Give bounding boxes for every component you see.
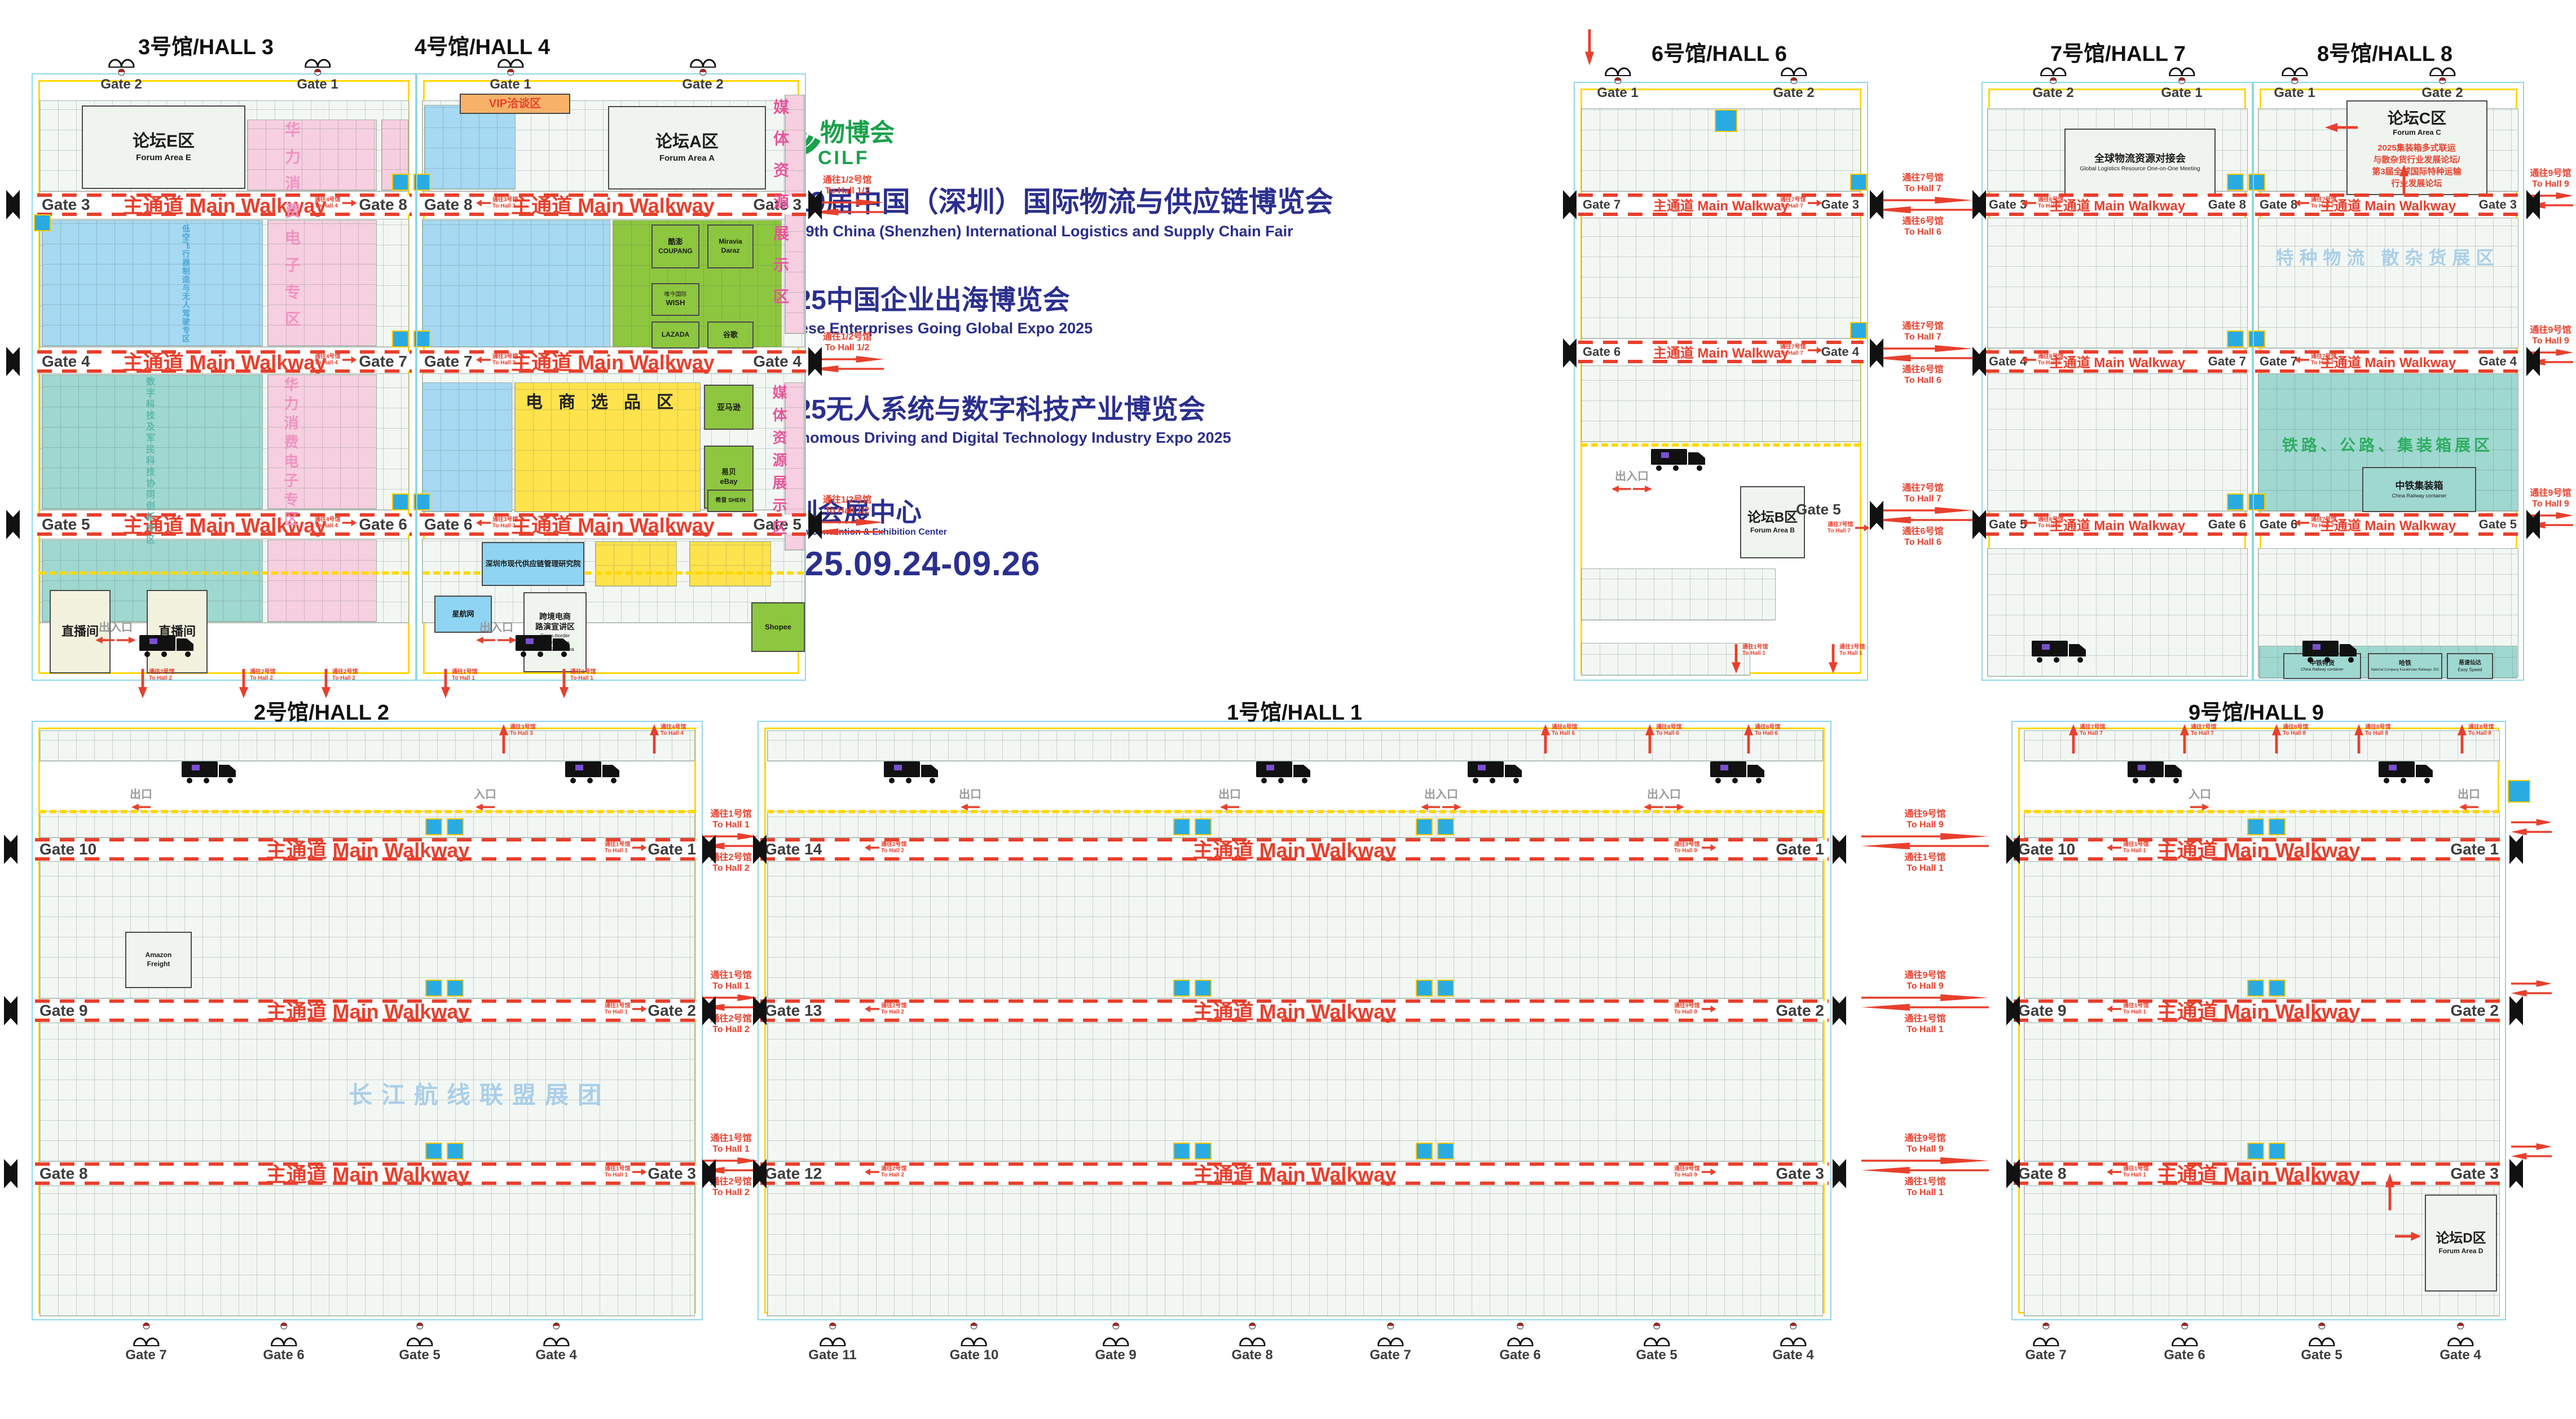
- side-gate-icon: [2526, 509, 2540, 540]
- walkway-destination-note: 通往7号馆To Hall 7: [2295, 354, 2337, 366]
- marker-dot-icon: [2291, 77, 2298, 84]
- feature-booth: 谷歌: [707, 321, 754, 349]
- marker-dot-icon: [2318, 1323, 2325, 1329]
- service-box-icon: [2227, 493, 2244, 510]
- booth-label: VIP洽谈区: [489, 98, 541, 111]
- gate-top: Gate 1: [490, 52, 531, 92]
- annotation-text: 通往6号馆To Hall 6: [1903, 216, 1944, 237]
- main-walkway-label: 主通道 Main Walkway: [511, 346, 715, 376]
- hall-9-title: 9号馆/HALL 9: [2189, 695, 2324, 726]
- zone-label-vertical: 媒体资源展示区: [769, 385, 790, 545]
- door-arc-icon: [497, 52, 523, 68]
- arrow-left-icon: [476, 637, 495, 644]
- entrance-exit-label: 入口: [474, 785, 496, 810]
- marker-dot-icon: [1790, 77, 1797, 84]
- to-hall-up-arrow: 通往6号馆To Hall 6: [1541, 724, 1578, 753]
- gate-top: Gate 2: [1773, 60, 1814, 101]
- arrow-icon: [632, 1006, 647, 1012]
- main-walkway-label: 主通道 Main Walkway: [1193, 995, 1397, 1025]
- booth-label: 直播间: [61, 624, 99, 638]
- arrow-icon: [2107, 1006, 2121, 1012]
- main-walkway-label: 主通道 Main Walkway: [266, 995, 470, 1025]
- feature-booth: MiraviaDaraz: [707, 224, 754, 268]
- gate-label: Gate 2: [2032, 85, 2073, 101]
- booth-label: Forum Area C: [2393, 129, 2441, 137]
- annotation-text: 通往4号馆To Hall 4: [660, 724, 686, 737]
- arrow-down-icon: [1829, 644, 1838, 673]
- marker-dot-icon: [699, 69, 706, 76]
- feature-booth: 论坛E区Forum Area E: [82, 105, 245, 189]
- booth-label: 易速仙达: [2459, 660, 2481, 667]
- main-walkway: Gate 6Gate 4主通道 Main Walkway通往7号馆To Hall…: [1578, 342, 1864, 362]
- arrow-right-icon: [1442, 804, 1461, 810]
- side-gate-icon: [1832, 995, 1847, 1026]
- side-gate-icon: [702, 995, 716, 1026]
- arrow-left-icon: [1421, 804, 1440, 810]
- arrow-icon: [1855, 525, 1870, 531]
- marker-dot-icon: [2178, 77, 2185, 84]
- gate-top: Gate 1: [2161, 60, 2202, 101]
- main-walkway: Gate 8Gate 3主通道 Main Walkway通往1号馆To Hall…: [2014, 1164, 2503, 1183]
- entrance-exit-label: 出口: [1218, 785, 1241, 810]
- booth-label: Shopee: [765, 623, 791, 632]
- annotation-text: 通往6号馆To Hall 6: [1552, 724, 1578, 737]
- gate-label: Gate 5: [2301, 1347, 2342, 1363]
- annotation-text: 通往7号馆To Hall 7: [2191, 724, 2217, 737]
- arrow-up-icon: [2272, 724, 2281, 753]
- feature-booth: 哈铁National Company Kazakhstan Railways J…: [2368, 653, 2442, 679]
- gate-label: Gate 11: [808, 1347, 856, 1363]
- service-box-icon: [1173, 980, 1190, 997]
- gate-top: Gate 1: [297, 52, 338, 92]
- booth-label: 论坛C区: [2388, 109, 2446, 127]
- to-hall-annotation: [2511, 980, 2552, 997]
- booth-label: China Railway container: [2392, 493, 2446, 499]
- main-walkway: Gate 5Gate 6主通道 Main Walkway通往6号馆To Hall…: [1984, 515, 2251, 534]
- to-hall-annotation: 通往9号馆To Hall 9通往1号馆To Hall 1: [1861, 809, 1989, 874]
- side-gate-icon: [808, 509, 822, 540]
- side-gate-icon: [2006, 834, 2020, 865]
- gate-label: Gate 2: [682, 77, 723, 92]
- main-walkway: Gate 3Gate 8主通道 Main Walkway通往6号馆To Hall…: [1984, 195, 2251, 214]
- gate-label: Gate 7: [1583, 197, 1621, 212]
- gate-label: Gate 4: [1772, 1347, 1813, 1363]
- main-walkway: Gate 8Gate 3主通道 Main Walkway通往3号馆To Hall…: [420, 195, 806, 214]
- annotation-text: 通往1/2号馆To Hall 1/2: [823, 495, 871, 516]
- main-walkway-label: 主通道 Main Walkway: [2050, 514, 2186, 534]
- gate-label: Gate 8: [2208, 197, 2246, 212]
- walkway-destination-note: 通往3号馆To Hall 3: [476, 197, 518, 209]
- service-box-icon: [1173, 1143, 1190, 1160]
- annotation-text: 通往2号馆To Hall 2: [711, 852, 752, 874]
- booth-zone-light_blue: [42, 220, 263, 346]
- side-gate-icon: [2509, 834, 2524, 865]
- door-arc-icon: [690, 52, 716, 68]
- gate-label: Gate 6: [2260, 517, 2297, 532]
- annotation-text: 通往9号馆To Hall 9: [2530, 168, 2571, 190]
- walkway-destination-note: 通往3号馆To Hall 3: [476, 517, 518, 529]
- main-walkway-label: 主通道 Main Walkway: [511, 509, 715, 539]
- annotation-text: 通往7号馆To Hall 7: [1903, 483, 1944, 504]
- annotation-text: 通往7号馆To Hall 7: [1903, 173, 1944, 194]
- annotation-text: 通往1号馆To Hall 1: [711, 809, 752, 830]
- annotation-text: 通往9号馆To Hall 9: [1905, 970, 1946, 991]
- service-box-icon: [1173, 818, 1190, 835]
- annotation-text: 通往1号馆To Hall 1: [570, 669, 596, 681]
- walkway-destination-note: 通往9号馆To Hall 9: [1674, 1166, 1716, 1178]
- hall-divider: [2253, 82, 2254, 681]
- side-gate-icon: [2006, 1158, 2020, 1189]
- feature-booth: Shopee: [751, 602, 805, 652]
- gate-label: Gate 6: [424, 515, 473, 534]
- arrow-icon: [2295, 519, 2309, 526]
- gate-bottom: Gate 6: [263, 1323, 304, 1363]
- main-walkway-label: 主通道 Main Walkway: [2050, 195, 2186, 214]
- gate-bottom: Gate 7: [2025, 1323, 2066, 1363]
- marker-dot-icon: [2439, 77, 2446, 84]
- booth-zone-light_blue: [424, 105, 516, 190]
- gate-label: Gate 6: [359, 515, 407, 534]
- arrow-icon: [632, 844, 647, 851]
- main-walkway: Gate 12Gate 3主通道 Main Walkway通往2号馆To Hal…: [760, 1164, 1829, 1183]
- annotation-text: 通往1号馆To Hall 1: [711, 1133, 752, 1154]
- booth-label: 哈铁: [2399, 660, 2411, 667]
- to-hall-up-arrow: 通往8号馆To Hall 8: [2354, 724, 2391, 753]
- booth-grid: [767, 861, 1823, 999]
- gate-label: Gate 4: [2440, 1347, 2481, 1363]
- arrow-left-icon: [1611, 486, 1631, 492]
- service-box-icon: [2247, 818, 2264, 835]
- service-box-icon: [2227, 330, 2244, 347]
- gate-label: Gate 8: [1231, 1347, 1272, 1363]
- side-gate-icon: [702, 834, 716, 865]
- logo-text-cn: 物博会: [820, 112, 895, 148]
- walkway-destination-note: 通往1号馆To Hall 1: [605, 841, 647, 854]
- arrow-left-icon: [1873, 355, 1973, 362]
- door-arc-icon: [2282, 60, 2308, 76]
- gate-label: Gate 9: [1095, 1347, 1136, 1363]
- door-arc-icon: [2447, 1330, 2473, 1346]
- walkway-destination-note: 通往6号馆To Hall 6: [2022, 517, 2064, 529]
- main-walkway-label: 主通道 Main Walkway: [2157, 995, 2361, 1025]
- arrow-down-icon: [560, 669, 569, 698]
- entrance-exit-label: 出口: [2458, 785, 2480, 810]
- truck-icon: [1255, 757, 1317, 784]
- to-hall-annotation: 通往7号馆To Hall 7通往6号馆To Hall 6: [1873, 173, 1973, 237]
- zone-label-vertical: 华力消费电子专区: [280, 377, 301, 535]
- gate-label: Gate 13: [765, 1002, 822, 1020]
- feature-booth: 全球物流资源对接会Global Logistics Resource One-o…: [2064, 129, 2216, 196]
- arrow-right-icon: [1861, 1157, 1989, 1164]
- gate-bottom: Gate 5: [2301, 1323, 2342, 1363]
- main-walkway: Gate 8Gate 3主通道 Main Walkway通往1号馆To Hall…: [35, 1164, 701, 1183]
- service-box-icon: [425, 818, 442, 835]
- booth-label: Forum Area E: [136, 153, 191, 162]
- booth-grid: [39, 1186, 695, 1316]
- arrow-icon: [1808, 347, 1822, 354]
- gate-label: Gate 2: [1776, 1002, 1824, 1020]
- arrow-icon: [1702, 844, 1716, 851]
- zone-label: 电商选品区: [526, 388, 689, 413]
- main-walkway-label: 主通道 Main Walkway: [266, 1158, 470, 1188]
- to-hall-up-arrow: 通往7号馆To Hall 7: [2069, 724, 2106, 753]
- booth-label: 星航网: [452, 610, 474, 619]
- truck-icon: [1650, 444, 1712, 471]
- booth-label: 论坛A区: [655, 133, 719, 152]
- gate-label: Gate 5: [399, 1347, 440, 1363]
- gate-label: Gate 6: [1583, 345, 1621, 359]
- gate-label: Gate 7: [2025, 1347, 2066, 1363]
- marker-dot-icon: [118, 69, 125, 76]
- side-gate-icon: [752, 834, 767, 865]
- walkway-destination-note: 通往4号馆To Hall 4: [315, 354, 357, 366]
- main-walkway-label: 主通道 Main Walkway: [1193, 834, 1397, 863]
- service-box-icon: [2248, 330, 2265, 347]
- gate-bottom: Gate 4: [1772, 1323, 1813, 1363]
- annotation-text: 通往9号馆To Hall 9: [1905, 809, 1946, 830]
- annotation-text: 通往2号馆To Hall 2: [711, 1176, 752, 1198]
- to-hall-annotation: 通往9号馆To Hall 9通往1号馆To Hall 1: [1861, 1133, 1989, 1198]
- walkway-destination-note: 通往6号馆To Hall 6: [2022, 354, 2064, 366]
- gate-label: Gate 2: [2450, 1002, 2499, 1020]
- booth-label: 酷澎: [668, 238, 682, 246]
- main-walkway: Gate 7Gate 4主通道 Main Walkway通往3号馆To Hall…: [420, 352, 806, 371]
- arrow-icon: [2107, 1169, 2121, 1175]
- zone-label: 长江航线联盟展团: [349, 1076, 610, 1110]
- marker-dot-icon: [143, 1323, 149, 1329]
- walkway-destination-note: 通往6号馆To Hall 6: [2022, 197, 2064, 209]
- marker-dot-icon: [314, 69, 321, 76]
- booth-label: Easy Speed: [2458, 667, 2482, 672]
- main-walkway-label: 主通道 Main Walkway: [266, 834, 470, 863]
- service-box-icon: [2227, 174, 2244, 191]
- gate-label: Gate 1: [1597, 85, 1638, 101]
- marker-dot-icon: [507, 69, 514, 76]
- arrow-left-icon: [1644, 804, 1663, 810]
- booth-zone-yellow_booth: [595, 541, 677, 587]
- gate-label: Gate 8: [424, 196, 473, 214]
- service-box-icon: [34, 214, 51, 231]
- gate-label: Gate 14: [765, 840, 822, 858]
- walkway-destination-note: 通往1号馆To Hall 1: [605, 1003, 647, 1015]
- walkway-destination-note: 通往7号馆To Hall 7: [1828, 522, 1870, 534]
- gate-top: Gate 1: [1597, 60, 1638, 101]
- gate-bottom: Gate 6: [1499, 1323, 1540, 1363]
- gate-bottom: Gate 7: [125, 1323, 166, 1363]
- annotation-text: 通往1号馆To Hall 1: [711, 970, 752, 991]
- expo3-title-cn: 2025无人系统与数字科技产业博览会: [766, 387, 1205, 426]
- gate-label: Gate 2: [1773, 85, 1814, 101]
- expo2-title-cn: 2025中国企业出海博览会: [766, 277, 1070, 317]
- arrow-left-icon: [2459, 804, 2478, 810]
- main-walkway-label: 主通道 Main Walkway: [2157, 834, 2361, 863]
- service-box-icon: [392, 174, 409, 191]
- expo3-title-en: Autonomous Driving and Digital Technolog…: [766, 429, 1231, 447]
- booth-grid: [1987, 373, 2248, 512]
- to-hall-up-arrow: 通往3号馆To Hall 3: [499, 724, 536, 753]
- yellow-dashed-boundary: [39, 571, 409, 575]
- service-box-icon: [2508, 780, 2530, 803]
- walkway-destination-note: 通往4号馆To Hall 4: [315, 197, 357, 209]
- service-box-icon: [1437, 818, 1454, 835]
- booth-label: Daraz: [721, 247, 740, 255]
- door-arc-icon: [1507, 1330, 1533, 1346]
- arrow-up-icon: [2069, 724, 2078, 753]
- door-arc-icon: [1644, 1330, 1670, 1346]
- arrow-up-icon: [2354, 724, 2363, 753]
- gate-label: Gate 1: [2161, 85, 2202, 101]
- to-hall-down-arrow: 通往1号馆To Hall 1: [441, 669, 478, 698]
- gate-label: Gate 5: [2479, 517, 2517, 532]
- arrow-right-icon: [1873, 345, 1973, 352]
- gate-label: Gate 6: [2208, 517, 2246, 532]
- gate-bottom: Gate 11: [808, 1323, 856, 1363]
- walkway-destination-note: 通往3号馆To Hall 3: [476, 354, 518, 366]
- gate-label: Gate 5: [1796, 501, 1841, 518]
- marker-dot-icon: [2181, 1323, 2188, 1329]
- main-walkway: Gate 3Gate 8主通道 Main Walkway通往4号馆To Hall…: [37, 195, 412, 214]
- feature-booth: AmazonFreight: [125, 932, 192, 988]
- main-walkway: Gate 6Gate 5主通道 Main Walkway通往3号馆To Hall…: [420, 515, 806, 534]
- walkway-destination-note: 通往7号馆To Hall 7: [2295, 517, 2337, 529]
- to-hall-up-arrow: 通往8号馆To Hall 8: [2458, 724, 2494, 753]
- service-box-icon: [2248, 174, 2265, 191]
- gate-label: Gate 3: [2450, 1165, 2499, 1183]
- gate-label: Gate 3: [2479, 197, 2517, 212]
- booth-label: 论坛E区: [133, 132, 195, 152]
- arrow-right-icon: [1861, 833, 1989, 840]
- feature-booth: 中铁集装箱China Railway container: [2362, 467, 2476, 512]
- main-walkway-label: 主通道 Main Walkway: [1653, 342, 1789, 362]
- annotation-text: 通往8号馆To Hall 8: [2365, 724, 2391, 737]
- service-box-icon: [425, 1143, 442, 1160]
- marker-dot-icon: [1614, 77, 1621, 84]
- to-hall-annotation: 通往7号馆To Hall 7通往6号馆To Hall 6: [1873, 483, 1973, 548]
- service-box-icon: [1416, 818, 1433, 835]
- service-box-icon: [1715, 109, 1737, 132]
- arrow-icon: [2022, 200, 2036, 206]
- arrow-left-icon: [95, 637, 115, 644]
- marker-dot-icon: [1112, 1323, 1119, 1329]
- side-gate-icon: [808, 346, 822, 377]
- gate-top: Gate 2: [2032, 60, 2073, 101]
- arrow-up-icon: [2458, 724, 2467, 753]
- zone-label: 特种物流 散杂货展区: [2276, 244, 2500, 270]
- door-arc-icon: [543, 1330, 569, 1346]
- gate-label: Gate 1: [490, 77, 531, 92]
- marker-dot-icon: [1517, 1323, 1523, 1329]
- arrow-icon: [342, 519, 357, 526]
- main-walkway: Gate 4Gate 7主通道 Main Walkway通往4号馆To Hall…: [37, 352, 412, 371]
- side-gate-icon: [1832, 1158, 1847, 1189]
- to-hall-down-arrow: 通往1号馆To Hall 1: [560, 669, 596, 698]
- gate-label: Gate 7: [2208, 354, 2246, 369]
- main-walkway: Gate 6Gate 5主通道 Main Walkway通往7号馆To Hall…: [2255, 515, 2521, 534]
- walkway-destination-note: 通往7号馆To Hall 7: [2295, 197, 2337, 209]
- expo1-title-en: The 19th China (Shenzhen) International …: [766, 223, 1293, 240]
- booth-zone-light_blue: [422, 382, 512, 512]
- gate-label: Gate 2: [2421, 85, 2463, 101]
- service-box-icon: [1416, 980, 1433, 997]
- gate-bottom: Gate 7: [1370, 1323, 1411, 1363]
- door-arc-icon: [2033, 1330, 2059, 1346]
- yellow-dashed-boundary: [423, 571, 804, 575]
- arrow-left-icon: [1873, 517, 1973, 523]
- to-hall-down-arrow: 通往2号馆To Hall 2: [239, 669, 276, 698]
- gate-label: Gate 10: [950, 1347, 999, 1363]
- booth-grid: [767, 1023, 1823, 1162]
- main-walkway: Gate 9Gate 2主通道 Main Walkway通往1号馆To Hall…: [35, 1001, 701, 1020]
- marker-dot-icon: [1653, 1323, 1660, 1329]
- door-arc-icon: [407, 1330, 433, 1346]
- annotation-text: 通往7号馆To Hall 7: [1903, 321, 1944, 342]
- feature-booth: VIP洽谈区: [460, 94, 570, 114]
- gate-bottom: Gate 4: [535, 1323, 576, 1363]
- walkway-destination-note: 通往7号馆To Hall 7: [1780, 197, 1822, 209]
- main-walkway: Gate 4Gate 7主通道 Main Walkway通往6号馆To Hall…: [1984, 352, 2251, 371]
- booth-grid: [2024, 861, 2500, 999]
- side-gate-icon: [2006, 995, 2020, 1026]
- floorplan-canvas: 物博会 CILF 第19届中国（深圳）国际物流与供应链博览会 The 19th …: [0, 0, 2576, 1419]
- gate-label: Gate 1: [2274, 85, 2315, 101]
- entrance-exit-label: 出口: [959, 785, 981, 810]
- booth-grid: [1581, 365, 1861, 442]
- hall-2-title: 2号馆/HALL 2: [254, 695, 389, 726]
- arrow-icon: [865, 844, 879, 851]
- arrow-icon: [476, 356, 491, 363]
- arrow-down-icon: [239, 669, 248, 698]
- gate-label: Gate 8: [2018, 1165, 2067, 1183]
- main-walkway-label: 主通道 Main Walkway: [2320, 195, 2456, 214]
- service-box-icon: [447, 818, 464, 835]
- zone-label-vertical: 媒体资源展示区: [769, 99, 791, 330]
- marker-dot-icon: [553, 1323, 560, 1329]
- arrow-icon: [2022, 519, 2036, 526]
- booth-label: National Company Kazakhstan Railways JSC: [2371, 668, 2439, 672]
- side-gate-icon: [1972, 509, 1987, 540]
- booth-grid: [1987, 218, 2248, 349]
- to-hall-down-arrow: 通往1号馆To Hall 1: [1732, 644, 1768, 673]
- truck-icon: [1709, 757, 1771, 784]
- annotation-text: 通往3号馆To Hall 3: [510, 724, 536, 737]
- walkway-destination-note: 通往9号馆To Hall 9: [1674, 841, 1716, 854]
- booth-label: Amazon: [146, 951, 172, 959]
- door-arc-icon: [271, 1330, 297, 1346]
- gate-label: Gate 3: [1776, 1165, 1824, 1183]
- side-gate-icon: [1972, 190, 1987, 220]
- service-box-icon: [1195, 1143, 1212, 1160]
- booth-label: COUPANG: [658, 248, 692, 255]
- gate-label: Gate 5: [42, 515, 90, 534]
- arrow-left-icon: [1861, 1004, 1989, 1011]
- gate-label: Gate 8: [359, 196, 407, 214]
- door-arc-icon: [1103, 1330, 1129, 1346]
- main-walkway-label: 主通道 Main Walkway: [1193, 1158, 1397, 1188]
- gate-label: Gate 9: [2018, 1002, 2067, 1020]
- main-walkway: Gate 5Gate 6主通道 Main Walkway通往4号馆To Hall…: [37, 515, 412, 534]
- service-box-icon: [1850, 322, 1867, 339]
- marker-dot-icon: [829, 1323, 836, 1329]
- gate-label: Gate 7: [424, 352, 473, 371]
- annotation-text: 通往8号馆To Hall 8: [2468, 724, 2494, 737]
- arrow-down-icon: [441, 669, 450, 698]
- arrow-left-icon: [1220, 804, 1239, 810]
- gate-label: Gate 6: [263, 1347, 304, 1363]
- entrance-exit-label: 出入口: [1421, 785, 1461, 810]
- booth-label: Forum Area A: [659, 153, 715, 163]
- annotation-text: 通往9号馆To Hall 9: [2530, 325, 2571, 346]
- gate-label: Gate 1: [648, 840, 696, 858]
